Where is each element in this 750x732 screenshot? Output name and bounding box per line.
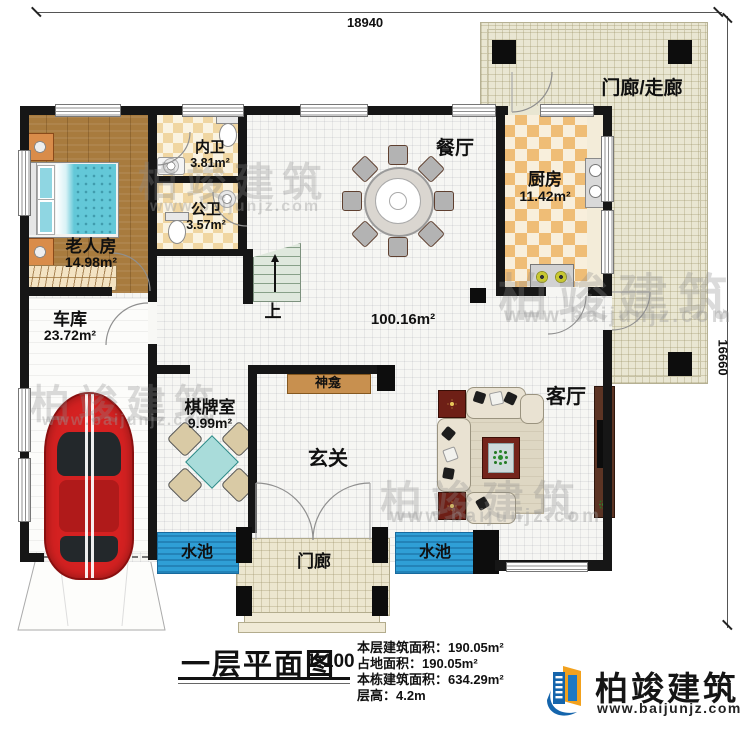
label-elder-room-area: 14.98m²: [58, 255, 124, 271]
info-row: 本栋建筑面积：634.29m²: [357, 672, 504, 688]
window: [182, 104, 244, 117]
column: [492, 40, 516, 64]
column: [470, 288, 486, 303]
label-porch-corridor: 门廊/走廊: [577, 78, 707, 99]
info-label: 本栋建筑面积：: [357, 672, 448, 687]
label-public-bath-area: 3.57m²: [180, 218, 232, 232]
wall-garage-bottom-stub: [20, 553, 44, 562]
watermark-site: www.baijunjz.com: [150, 198, 320, 216]
label-pool-right: 水池: [404, 544, 466, 562]
dimension-right-value: 16660: [716, 339, 731, 375]
sofa-cushion: [489, 391, 504, 406]
wall-foyer-top: [248, 365, 395, 374]
car-windshield: [57, 432, 121, 476]
dining-chair: [388, 145, 408, 165]
label-hall-area: 100.16m²: [358, 312, 448, 329]
info-value: 190.05m²: [422, 656, 478, 671]
garage-door-opening: [148, 302, 157, 344]
dimension-top-line: [36, 12, 722, 13]
window: [18, 150, 31, 216]
window: [506, 562, 588, 572]
label-porch-bottom: 门廊: [284, 552, 344, 571]
column: [668, 40, 692, 64]
info-value: 190.05m²: [448, 640, 504, 655]
wall-bath-bottom: [153, 249, 247, 256]
label-kitchen-area: 11.42m²: [512, 189, 578, 205]
porch-step: [238, 622, 386, 633]
bed-pillow: [38, 166, 54, 200]
label-shrine: 神龛: [302, 376, 354, 391]
title-underline: [178, 677, 350, 680]
title-underline-thin: [178, 683, 350, 684]
dimension-top-value: 18940: [347, 15, 383, 30]
wall-end-block: [377, 365, 395, 391]
label-public-bath: 公卫: [182, 202, 230, 219]
window: [601, 136, 614, 202]
label-inner-bath-area: 3.81m²: [184, 156, 236, 170]
logo-building-icon: [545, 660, 591, 718]
sheet-scale: 1:100: [306, 651, 355, 673]
label-garage-area: 23.72m²: [37, 328, 103, 344]
info-label: 层高：: [357, 688, 396, 703]
info-row: 占地面积：190.05m²: [357, 656, 504, 672]
nightstand: [26, 238, 54, 266]
label-living: 客厅: [544, 386, 588, 408]
window: [300, 104, 368, 117]
side-table: [438, 390, 466, 418]
label-inner-bath: 内卫: [186, 140, 234, 157]
label-kitchen: 厨房: [515, 170, 575, 189]
car-rear-window: [60, 536, 118, 562]
info-value: 4.2m: [396, 688, 426, 703]
window: [452, 104, 496, 117]
bed-pillow: [38, 200, 54, 234]
label-dining: 餐厅: [425, 138, 485, 159]
logo-site-text: www.baijunjz.com: [597, 700, 742, 716]
label-pool-left: 水池: [166, 544, 228, 562]
bed-sheet: [56, 164, 74, 234]
potted-plant: [498, 455, 503, 460]
dining-chair: [434, 191, 454, 211]
info-label: 占地面积：: [357, 656, 422, 671]
label-chess-room-area: 9.99m²: [182, 416, 238, 432]
wall-right-lower: [603, 330, 612, 570]
car-roof: [59, 480, 119, 532]
info-row: 本层建筑面积：190.05m²: [357, 640, 504, 656]
wall-stairs-left: [243, 249, 253, 304]
building-info: 本层建筑面积：190.05m² 占地面积：190.05m² 本栋建筑面积：634…: [357, 640, 504, 704]
column: [668, 352, 692, 376]
porch-bottom-floor: [236, 538, 390, 616]
info-label: 本层建筑面积：: [357, 640, 448, 655]
dining-table-hub: [389, 192, 407, 210]
pier: [236, 527, 252, 563]
pier: [372, 586, 388, 616]
watermark-site: www.baijunjz.com: [390, 506, 602, 528]
stairs-arrow: [274, 262, 276, 292]
info-value: 634.29m²: [448, 672, 504, 687]
pier: [236, 586, 252, 616]
wall-elder-bottom: [20, 287, 112, 296]
stairs-arrow-head: [271, 254, 279, 262]
wall-chess-right: [248, 365, 257, 533]
pier: [372, 527, 388, 563]
watermark-site: www.baijunjz.com: [504, 304, 733, 328]
bed-blanket: [74, 164, 116, 234]
info-row: 层高：4.2m: [357, 688, 504, 704]
label-foyer: 玄关: [305, 448, 351, 470]
window: [18, 458, 31, 522]
window: [55, 104, 121, 117]
dining-chair: [342, 191, 362, 211]
dining-chair: [388, 237, 408, 257]
sofa-corner: [520, 394, 544, 424]
label-stairs-up: 上: [262, 302, 284, 321]
window: [540, 104, 594, 117]
floor-plan-canvas: 18940 16660: [0, 0, 750, 732]
